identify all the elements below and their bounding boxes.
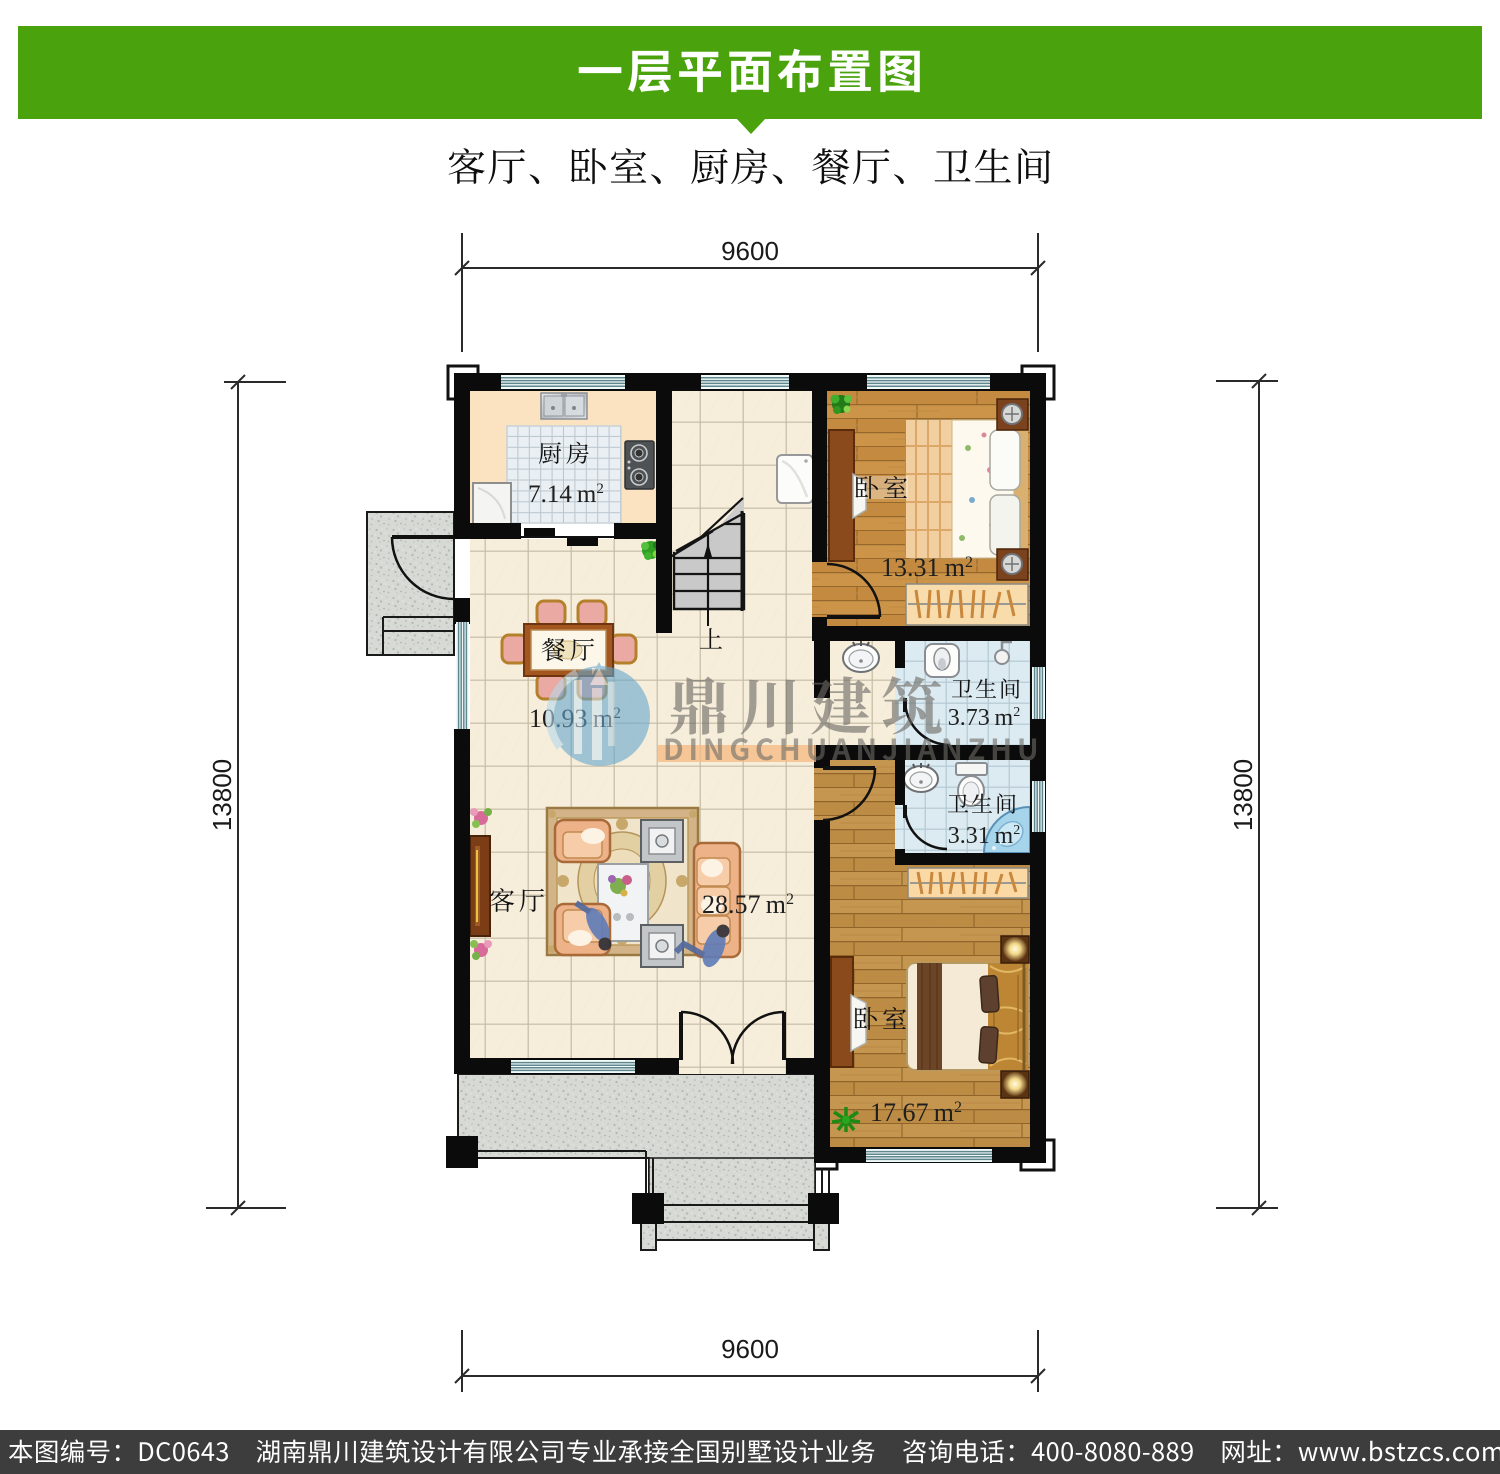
svg-text:13.31 m2: 13.31 m2 [881,553,973,582]
svg-text:17.67 m2: 17.67 m2 [870,1098,962,1127]
svg-text:3.73 m2: 3.73 m2 [948,705,1020,731]
svg-text:7.14 m2: 7.14 m2 [528,481,604,508]
svg-text:9600: 9600 [721,236,779,266]
svg-text:9600: 9600 [721,1334,779,1364]
svg-text:3.31 m2: 3.31 m2 [948,823,1020,849]
svg-text:28.57 m2: 28.57 m2 [702,890,794,919]
svg-text:13800: 13800 [207,759,237,831]
svg-text:13800: 13800 [1228,759,1258,831]
